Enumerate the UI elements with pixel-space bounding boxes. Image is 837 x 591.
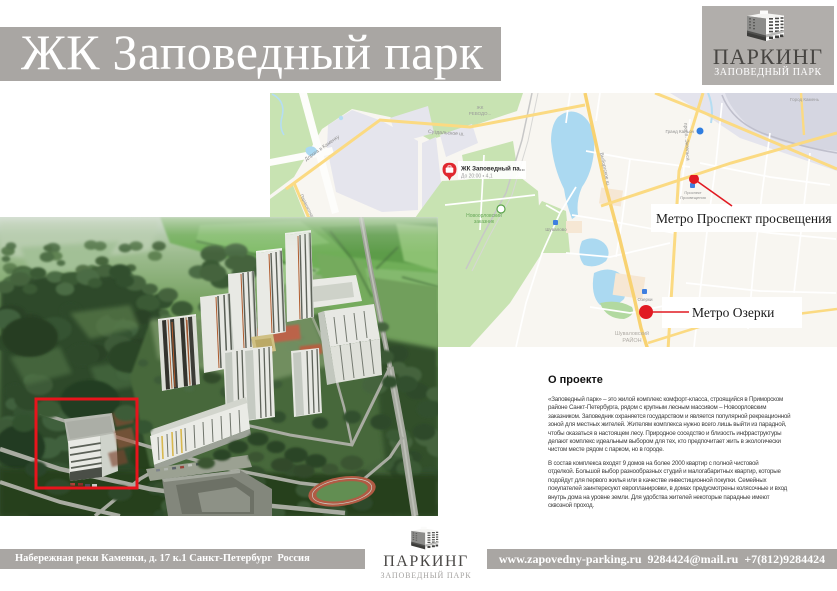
svg-text:заказник: заказник [474, 219, 495, 225]
svg-text:РЕВОДО...: РЕВОДО... [469, 111, 492, 116]
svg-text:Шуваловский: Шуваловский [615, 330, 649, 337]
svg-text:ЖК: ЖК [477, 105, 484, 110]
svg-text:ЖК Заповедный па...: ЖК Заповедный па... [460, 166, 525, 173]
svg-text:Гранд Каньон: Гранд Каньон [666, 129, 695, 134]
svg-text:РАЙОН: РАЙОН [622, 336, 641, 344]
svg-text:Город Камень: Город Камень [790, 97, 820, 102]
svg-text:Шувалово: Шувалово [545, 227, 567, 232]
svg-text:До 20:00 ▪ 4,1: До 20:00 ▪ 4,1 [461, 174, 493, 180]
svg-text:Новоорловский: Новоорловский [466, 212, 502, 219]
